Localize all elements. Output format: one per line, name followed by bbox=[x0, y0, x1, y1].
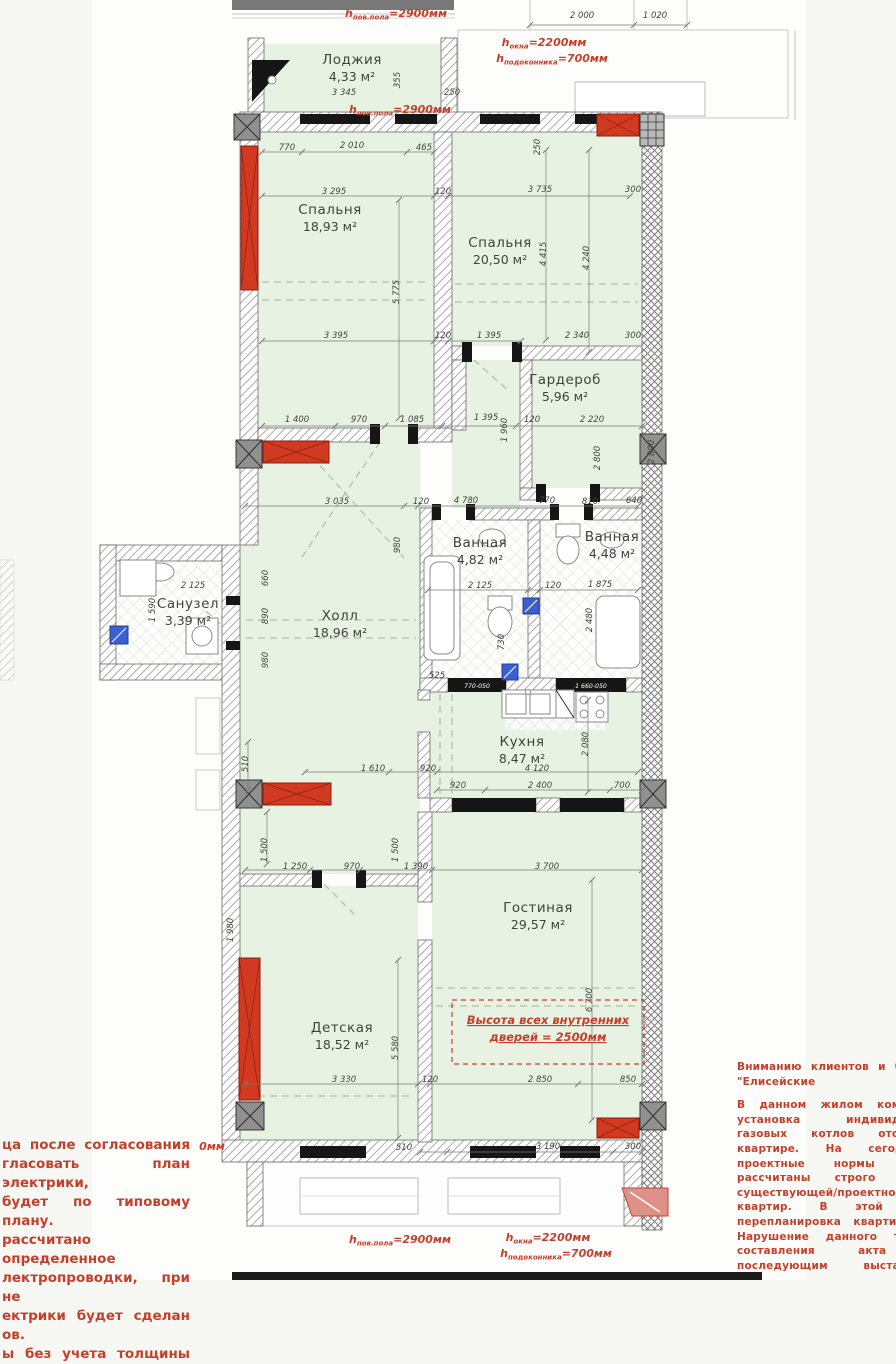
note-line: существующей/проектной bbox=[737, 1186, 896, 1201]
room-name: Санузел bbox=[157, 596, 219, 612]
note-line: установка индивидуальн bbox=[737, 1113, 896, 1128]
room-name: Кухня bbox=[499, 734, 544, 750]
dim-label: 970 bbox=[344, 862, 360, 872]
dim-label: 660 bbox=[261, 570, 271, 586]
dim-label: 250 bbox=[444, 88, 460, 98]
note-line: последующим выставлени bbox=[737, 1259, 896, 1274]
note-line: рассчитано определенное bbox=[2, 1231, 190, 1269]
room-area: 18,96 м² bbox=[313, 625, 367, 640]
dim-label: 920 bbox=[450, 781, 466, 791]
dim-label: 120 bbox=[545, 581, 561, 591]
door-size-label: 770-050 bbox=[464, 683, 490, 690]
note-line: Нарушение данного требов bbox=[737, 1230, 896, 1245]
dim-label: 1 250 bbox=[283, 862, 307, 872]
dim-label: 2 125 bbox=[181, 581, 205, 591]
dim-label: 3 295 bbox=[322, 187, 346, 197]
dim-label: 2 340 bbox=[565, 331, 589, 341]
dim-label: 3 190 bbox=[536, 1142, 560, 1152]
room-area: 4,82 м² bbox=[457, 552, 503, 567]
dim-label: 2 400 bbox=[528, 781, 552, 791]
room-name: Гардероб bbox=[529, 372, 601, 388]
dim-label: 3 735 bbox=[528, 185, 552, 195]
room-area: 20,50 м² bbox=[473, 252, 527, 267]
room-name: Холл bbox=[322, 608, 359, 624]
room-name: Детская bbox=[311, 1020, 373, 1036]
dim-label: 1 960 bbox=[500, 418, 510, 442]
dim-label: 2 850 bbox=[528, 1075, 552, 1085]
dim-label: 890 bbox=[261, 608, 271, 624]
note-line: квартир. В этой связ bbox=[737, 1200, 896, 1215]
dim-label: 3 700 bbox=[535, 862, 559, 872]
dim-label: 1 020 bbox=[643, 11, 667, 21]
room-name: Ванная bbox=[453, 535, 508, 551]
note-line: ы без учета толщины bbox=[2, 1345, 190, 1364]
dim-label: 2 000 bbox=[570, 11, 594, 21]
dim-label: 465 bbox=[416, 143, 432, 153]
dim-label: 1 500 bbox=[391, 838, 401, 862]
dim-label: 3 035 bbox=[325, 497, 349, 507]
dim-label: 300 bbox=[625, 185, 641, 195]
door-size-label: 1 660-050 bbox=[575, 683, 607, 690]
note-line: составления акта о bbox=[737, 1244, 896, 1259]
note-line: газовых котлов отоплени bbox=[737, 1127, 896, 1142]
room-name: Спальня bbox=[468, 235, 532, 251]
room-area: 5,96 м² bbox=[542, 389, 588, 404]
room-area: 8,47 м² bbox=[499, 751, 545, 766]
dim-label: 120 bbox=[435, 187, 451, 197]
dim-label: 300 bbox=[625, 1142, 641, 1152]
dim-label: 980 bbox=[261, 652, 271, 668]
dim-label: 1 085 bbox=[400, 415, 424, 425]
dim-label: 355 bbox=[393, 72, 403, 88]
note-line: "Елисейские поля"! bbox=[737, 1075, 896, 1090]
door-height-note: дверей = 2500мм bbox=[489, 1030, 608, 1044]
dim-label: 980 bbox=[393, 537, 403, 553]
note-line: В данном жилом комплекс bbox=[737, 1098, 896, 1113]
dim-label: 2 220 bbox=[580, 415, 604, 425]
note-line: ектрики будет сделан bbox=[2, 1307, 190, 1326]
dim-label: 3 395 bbox=[324, 331, 348, 341]
left-warning-note: ца после согласованиягласовать план элек… bbox=[2, 1136, 190, 1364]
dim-label: 1 390 bbox=[404, 862, 428, 872]
note-line: гласовать план электрики, bbox=[2, 1155, 190, 1193]
note-line: ца после согласования bbox=[2, 1136, 190, 1155]
dim-label: 120 bbox=[524, 415, 540, 425]
dim-label: 525 bbox=[429, 671, 445, 681]
dim-label: 3 330 bbox=[332, 1075, 356, 1085]
dim-label: 300 bbox=[625, 331, 641, 341]
dim-label: 4 780 bbox=[454, 496, 478, 506]
dim-label: 640 bbox=[626, 496, 642, 506]
dim-label: 970 bbox=[351, 415, 367, 425]
room-area: 3,39 м² bbox=[165, 613, 211, 628]
room-area: 4,48 м² bbox=[589, 546, 635, 561]
dim-label: 5 580 bbox=[391, 1036, 401, 1060]
dim-label: 1 875 bbox=[588, 580, 612, 590]
dim-label: 1 395 bbox=[474, 413, 498, 423]
dim-label: 1 400 bbox=[285, 415, 309, 425]
dim-label: 120 bbox=[413, 497, 429, 507]
dim-label: 850 bbox=[620, 1075, 636, 1085]
note-line: ов. bbox=[2, 1326, 190, 1345]
note-line: проектные нормы газов bbox=[737, 1157, 896, 1172]
dim-label: 770 bbox=[279, 143, 295, 153]
red-annotation: 0мм bbox=[199, 1140, 225, 1153]
dim-label: 510 bbox=[241, 756, 251, 772]
dim-label: 2 080 bbox=[581, 732, 591, 756]
room-name: Лоджия bbox=[322, 52, 382, 68]
dim-label: 2 800 bbox=[647, 440, 657, 464]
dim-label: 510 bbox=[396, 1143, 412, 1153]
dim-label: 4 415 bbox=[539, 242, 549, 266]
dim-label: 730 bbox=[497, 634, 507, 650]
note-line: будет по типовому плану. bbox=[2, 1193, 190, 1231]
room-area: 4,33 м² bbox=[329, 69, 375, 84]
dim-label: 1 980 bbox=[226, 918, 236, 942]
note-line: квартире. На сегодняшн bbox=[737, 1142, 896, 1157]
room-area: 18,52 м² bbox=[315, 1037, 369, 1052]
note-line: рассчитаны строго в с bbox=[737, 1171, 896, 1186]
dim-label: 5 775 bbox=[392, 280, 402, 304]
dim-label: 1 500 bbox=[260, 838, 270, 862]
dim-label: 3 345 bbox=[332, 88, 356, 98]
right-warning-note: Вниманию клиентов и будущ"Елисейские пол… bbox=[737, 1060, 896, 1273]
room-name: Ванная bbox=[585, 529, 640, 545]
dim-label: 770 bbox=[539, 496, 555, 506]
note-line: лектропроводки, при не bbox=[2, 1269, 190, 1307]
dim-label: 4 240 bbox=[582, 246, 592, 270]
dim-label: 250 bbox=[533, 139, 543, 155]
note-line: перепланировка квартир стр bbox=[737, 1215, 896, 1230]
door-height-note: Высота всех внутренних bbox=[467, 1013, 630, 1027]
dim-label: 120 bbox=[435, 331, 451, 341]
dim-label: 2 480 bbox=[585, 608, 595, 632]
dim-label: 810 bbox=[582, 497, 598, 507]
dim-label: 1 395 bbox=[477, 331, 501, 341]
room-name: Спальня bbox=[298, 202, 362, 218]
dim-label: 120 bbox=[422, 1075, 438, 1085]
room-name: Гостиная bbox=[503, 900, 573, 916]
dim-label: 2 010 bbox=[340, 141, 364, 151]
dim-label: 1 610 bbox=[361, 764, 385, 774]
dim-label: 700 bbox=[614, 781, 630, 791]
dim-label: 2 800 bbox=[593, 446, 603, 470]
dim-label: 920 bbox=[420, 764, 436, 774]
room-area: 18,93 м² bbox=[303, 219, 357, 234]
dim-label: 2 125 bbox=[468, 581, 492, 591]
room-area: 29,57 м² bbox=[511, 917, 565, 932]
note-line: Вниманию клиентов и будущ bbox=[737, 1060, 896, 1075]
